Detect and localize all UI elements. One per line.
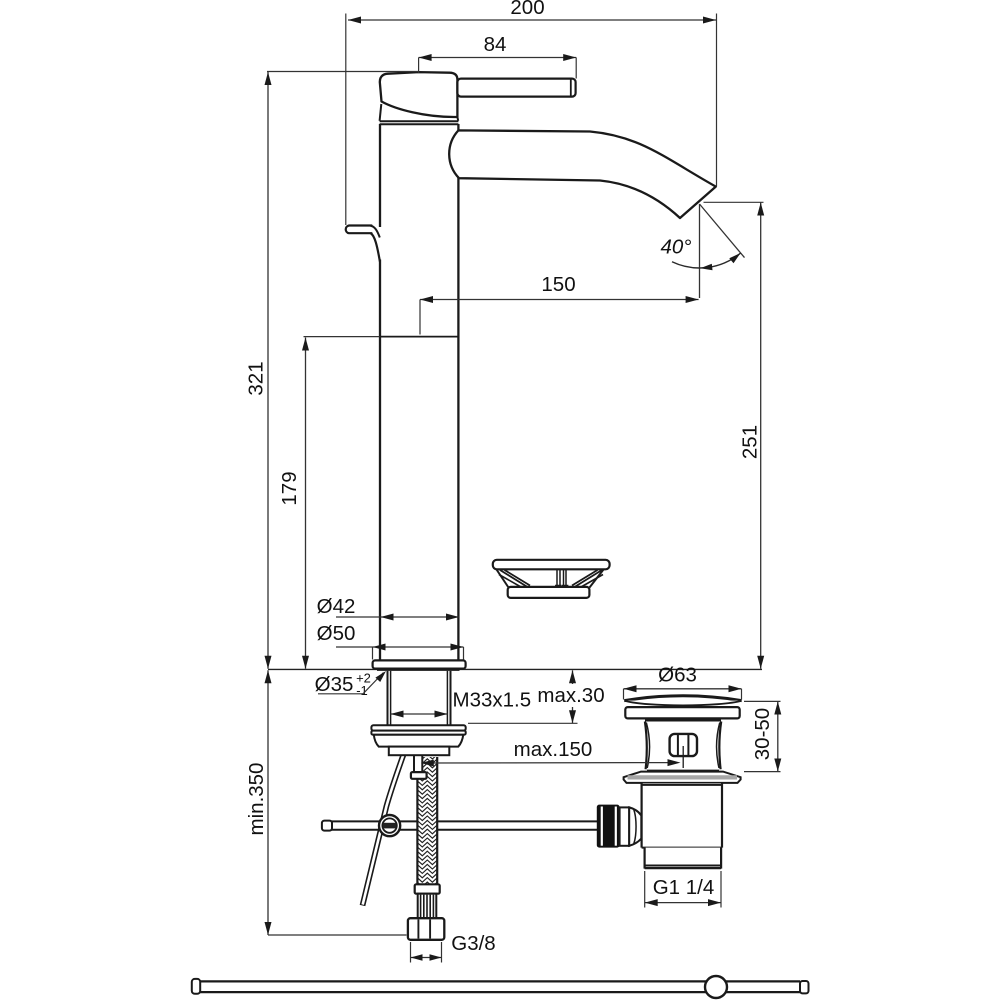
- svg-text:84: 84: [484, 33, 507, 56]
- svg-text:G3/8: G3/8: [451, 932, 495, 955]
- svg-text:min.350: min.350: [245, 763, 268, 836]
- svg-text:321: 321: [245, 361, 268, 395]
- svg-text:M33x1.5: M33x1.5: [453, 689, 532, 712]
- svg-text:40°: 40°: [660, 236, 691, 259]
- svg-text:251: 251: [739, 425, 762, 459]
- svg-text:Ø50: Ø50: [317, 622, 356, 645]
- svg-text:max.150: max.150: [514, 738, 593, 761]
- svg-text:max.30: max.30: [537, 684, 604, 707]
- svg-text:Ø35: Ø35: [315, 673, 354, 696]
- svg-text:G1 1/4: G1 1/4: [653, 876, 715, 899]
- svg-text:179: 179: [278, 471, 301, 505]
- svg-text:200: 200: [510, 0, 544, 19]
- svg-text:150: 150: [541, 273, 575, 296]
- svg-text:Ø63: Ø63: [658, 664, 697, 687]
- svg-text:Ø42: Ø42: [317, 595, 356, 618]
- svg-text:30-50: 30-50: [751, 708, 774, 760]
